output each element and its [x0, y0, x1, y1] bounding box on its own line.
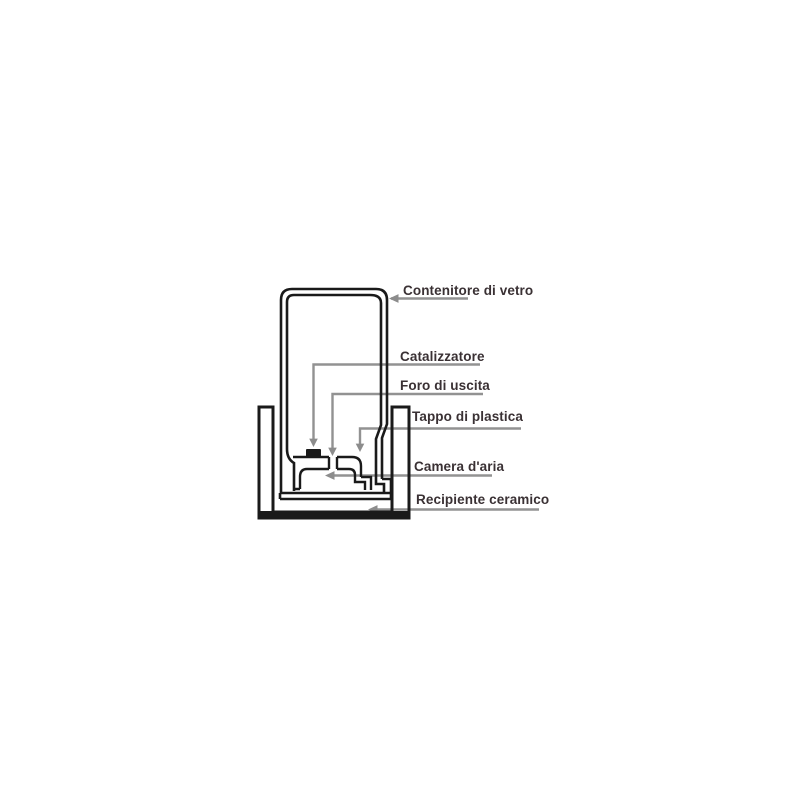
- label-plastic-cap: Tappo di plastica: [412, 410, 523, 424]
- catalyst-block: [306, 449, 321, 458]
- label-ceramic-vessel: Recipiente ceramico: [416, 493, 549, 507]
- label-glass-container: Contenitore di vetro: [403, 284, 533, 298]
- glass-container-outer-wall: [281, 289, 387, 493]
- glass-container-bottom: [280, 493, 391, 499]
- label-exit-hole: Foro di uscita: [400, 379, 490, 393]
- lamp-cross-section-drawing: [0, 0, 800, 800]
- plastic-cap-left: [293, 457, 329, 489]
- arrowhead-plastic-cap: [356, 444, 365, 452]
- leader-lines: [314, 299, 540, 510]
- glass-container-foot: [376, 477, 391, 493]
- plastic-cap-right: [337, 457, 371, 490]
- ceramic-vessel-bottom: [259, 511, 409, 518]
- label-catalyst: Catalizzatore: [400, 350, 485, 364]
- arrowhead-air-chamber: [325, 471, 335, 480]
- diagram-canvas: Contenitore di vetro Catalizzatore Foro …: [0, 0, 800, 800]
- arrowhead-glass-container: [389, 294, 399, 303]
- label-air-chamber: Camera d'aria: [414, 460, 504, 474]
- arrowhead-exit-hole: [328, 448, 337, 456]
- arrowhead-catalyst: [309, 439, 318, 447]
